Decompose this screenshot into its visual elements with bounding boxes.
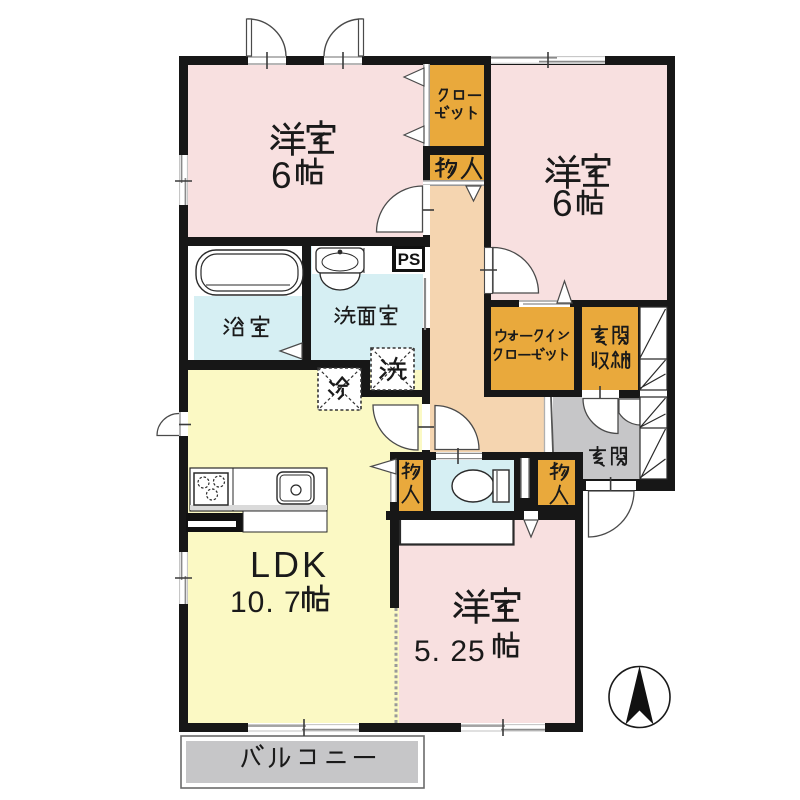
svg-text:10. 7: 10. 7 (230, 586, 302, 619)
svg-text:6: 6 (552, 183, 573, 224)
svg-text:PS: PS (398, 250, 421, 269)
svg-text:LDK: LDK (250, 544, 329, 585)
svg-text:5. 25: 5. 25 (414, 635, 486, 668)
svg-text:6: 6 (271, 155, 292, 196)
